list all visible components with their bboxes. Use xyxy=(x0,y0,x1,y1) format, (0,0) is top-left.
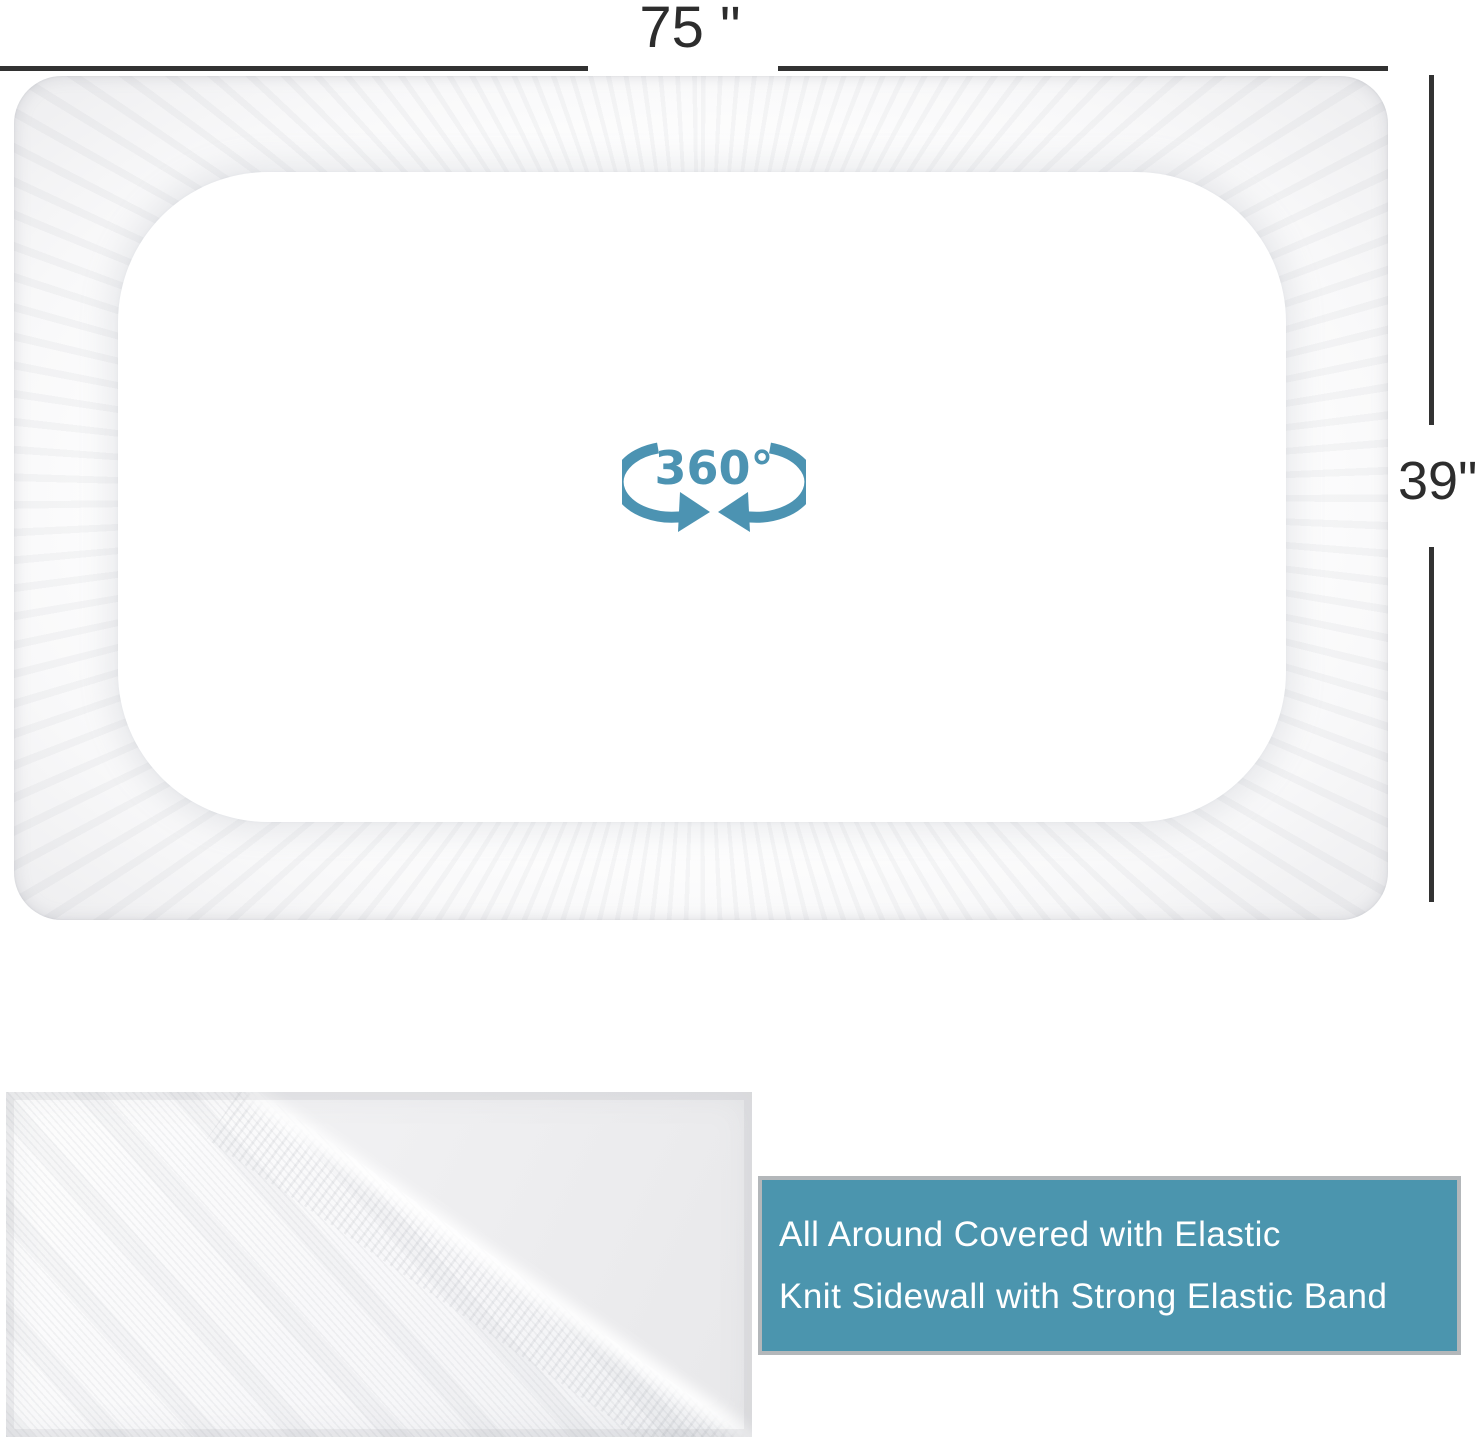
fitted-sheet-photo: 360° xyxy=(14,76,1388,920)
rotation-360-icon: 360° xyxy=(622,430,806,540)
photo-frame xyxy=(6,1092,752,1437)
feature-banner: All Around Covered with Elastic Knit Sid… xyxy=(758,1176,1461,1355)
height-dimension-label: 39" xyxy=(1398,450,1477,512)
width-dimension-label: 75 " xyxy=(595,0,785,61)
feature-banner-line2: Knit Sidewall with Strong Elastic Band xyxy=(779,1266,1457,1328)
elastic-corner-detail-photo xyxy=(6,1092,752,1437)
height-dimension-line-top xyxy=(1429,75,1434,425)
product-infographic: 75 " 39" 360° All Around Covered with El… xyxy=(0,0,1482,1446)
width-dimension-line-left xyxy=(0,66,588,71)
rotate-arrow-left-head xyxy=(678,492,710,532)
feature-banner-line1: All Around Covered with Elastic xyxy=(779,1204,1457,1266)
rotation-degrees-text: 360° xyxy=(654,441,773,495)
width-dimension-line-right xyxy=(778,66,1388,71)
height-dimension-line-bottom xyxy=(1429,547,1434,902)
rotate-arrow-right-head xyxy=(718,492,750,532)
